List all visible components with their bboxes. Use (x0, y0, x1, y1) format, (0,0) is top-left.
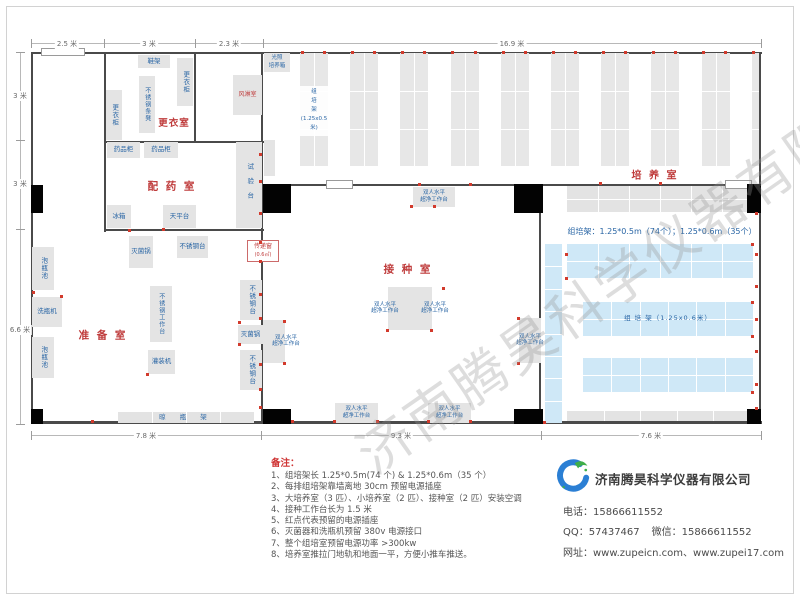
dimension-label: 7.6 米 (639, 431, 663, 441)
power-socket-dot (433, 205, 436, 208)
dimension-label: 7.8 米 (134, 431, 158, 441)
culture-rack-column-divider (414, 53, 415, 166)
culture-rack-column-divider (364, 53, 365, 166)
power-socket-dot (474, 51, 477, 54)
dimension-tick (195, 39, 196, 48)
door (326, 180, 353, 189)
power-socket-dot (552, 51, 555, 54)
culture-rack-column-divider (601, 129, 629, 130)
power-socket-dot (755, 407, 758, 410)
dimension-tick (761, 39, 762, 48)
stainless-worktable (150, 286, 172, 342)
tissue-rack-blue-3-divider (583, 375, 753, 376)
medicine-cabinet-1 (107, 142, 140, 158)
websites: www.zupeicn.com、www.zupei17.com (593, 548, 784, 559)
power-socket-dot (469, 420, 472, 423)
culture-rack-column-divider (601, 91, 629, 92)
culture-rack-column-divider (565, 53, 566, 166)
phone-number: 15866611552 (593, 507, 663, 518)
culture-rack-column-divider (451, 91, 479, 92)
note-item: 7、整个组培室预留电源功率 >300kw (271, 539, 522, 550)
power-socket-dot (32, 291, 35, 294)
power-socket-dot (602, 51, 605, 54)
wardrobe-cabinet-2 (106, 90, 122, 140)
fridge (107, 205, 131, 228)
dispensing-room-label: 配 药 室 (148, 179, 197, 194)
power-socket-dot (674, 51, 677, 54)
balance-table (163, 205, 196, 228)
tissue-rack-strip-divider (545, 311, 562, 312)
bottle-drying-rack-divider (186, 412, 187, 423)
dimension-tick (261, 431, 262, 440)
power-socket-dot (652, 51, 655, 54)
power-socket-dot (259, 388, 262, 391)
dimension-label: 16.9 米 (498, 39, 527, 49)
bottle-washer (32, 297, 62, 327)
filling-machine (148, 350, 175, 374)
clean-bench-3-label: 双人水平 超净工作台 (413, 302, 457, 316)
note-item: 2、每排组培架靠墙离地 30cm 预留电源插座 (271, 482, 522, 493)
culture-rack-column-divider (465, 53, 466, 166)
clean-bench-6-label: 双人水平 超净工作台 (335, 406, 379, 420)
stainless-table-3 (240, 350, 262, 390)
power-socket-dot (427, 420, 430, 423)
culture-rack-column-divider (551, 129, 579, 130)
dimension-label: 6.6 米 (8, 325, 32, 335)
qq-label: QQ： (563, 527, 589, 538)
tissue-rack-strip-divider (545, 401, 562, 402)
culture-rack-column-divider (501, 129, 529, 130)
clean-bench-5-label: 双人水平 超净工作台 (508, 334, 552, 348)
culture-rack-column-divider (615, 53, 616, 166)
power-socket-dot (259, 241, 262, 244)
dimension-label: 3 米 (11, 91, 29, 101)
sterilizer-pot-1 (129, 236, 153, 268)
note-item: 3、大培养室（3 匹）、小培养室（2 匹）、接种室（2 匹）安装空调 (271, 494, 522, 505)
stainless-table-2 (240, 280, 262, 320)
note-item: 4、接种工作台长为 1.5 米 (271, 505, 522, 516)
power-socket-dot (469, 183, 472, 186)
note-item: 8、培养室推拉门地轨和地面一平，方便小推车推送。 (271, 550, 522, 561)
tissue-rack-blue-2-divider (583, 319, 753, 320)
power-socket-dot (283, 320, 286, 323)
power-socket-dot (599, 182, 602, 185)
bottom-rack-gray-divider (713, 411, 714, 421)
power-socket-dot (376, 420, 379, 423)
power-socket-dot (333, 420, 336, 423)
changing-room-label: 更衣室 (158, 115, 190, 129)
pillar (514, 184, 543, 213)
power-socket-dot (451, 51, 454, 54)
culture-rack-column-divider (350, 129, 378, 130)
pillar (263, 409, 291, 424)
pillar (514, 409, 543, 424)
power-socket-dot (128, 229, 131, 232)
wall (352, 184, 517, 186)
power-socket-dot (755, 383, 758, 386)
power-socket-dot (146, 373, 149, 376)
power-socket-dot (752, 51, 755, 54)
power-socket-dot (423, 51, 426, 54)
culture-rack-column-divider (702, 91, 730, 92)
dimension-tick (761, 431, 762, 440)
dimension-tick (16, 52, 25, 53)
power-socket-dot (755, 285, 758, 288)
contact-web-row: 网址：www.zupeicn.com、www.zupei17.com (556, 544, 798, 559)
wechat-label: 微信： (652, 527, 682, 538)
culture-rack-column-divider (515, 53, 516, 166)
power-socket-dot (751, 391, 754, 394)
company-logo-text: TH (566, 472, 579, 482)
air-shower (233, 75, 262, 115)
power-socket-dot (162, 228, 165, 231)
contact-phone-row: 电话：15866611552 (556, 503, 798, 518)
culture-rack-column-divider (551, 91, 579, 92)
power-socket-dot (502, 51, 505, 54)
power-socket-dot (301, 51, 304, 54)
power-socket-dot (574, 51, 577, 54)
power-socket-dot (418, 183, 421, 186)
power-socket-dot (751, 335, 754, 338)
power-socket-dot (351, 51, 354, 54)
dimension-tick (541, 431, 542, 440)
bottom-rack-gray-divider (604, 411, 605, 421)
power-socket-dot (442, 287, 445, 290)
dimension-tick (31, 39, 32, 48)
power-socket-dot (751, 243, 754, 246)
contact-qq-row: QQ：57437467微信：15866611552 (556, 523, 798, 538)
floorplan-sheet: 晾 瓶 架组 培 架（1.25x0.6米）组 培 架 (1.25x0.5米)鞋架… (0, 0, 800, 600)
culture-rack-column (752, 53, 759, 166)
power-socket-dot (565, 277, 568, 280)
clean-bench-4-label: 双人水平 超净工作台 (264, 335, 308, 349)
pillar (747, 184, 761, 213)
medicine-cabinet-2 (144, 142, 178, 158)
pillar (31, 409, 43, 424)
notes-title: 备注： (271, 455, 522, 469)
inoculation-room-label: 接 种 室 (384, 262, 433, 277)
wechat-number: 15866611552 (682, 527, 752, 538)
power-socket-dot (259, 293, 262, 296)
bottle-soak-pool-2 (32, 337, 54, 378)
power-socket-dot (259, 212, 262, 215)
side-cabinet (264, 140, 275, 176)
sterilizer-pot-2 (238, 325, 263, 344)
dimension-label: 2.3 米 (217, 39, 241, 49)
power-socket-dot (60, 295, 63, 298)
notes-block: 备注： 1、组培架长 1.25*0.5m(74 个) & 1.25*0.6m（3… (271, 455, 522, 561)
culture-rack-column-divider (501, 91, 529, 92)
phone-label: 电话： (563, 507, 593, 518)
dimension-label: 3 米 (140, 39, 158, 49)
power-socket-dot (238, 343, 241, 346)
power-socket-dot (259, 153, 262, 156)
dimension-tick (263, 39, 264, 48)
power-socket-dot (524, 51, 527, 54)
power-socket-dot (751, 301, 754, 304)
shoe-rack (138, 55, 170, 68)
rack-spec-note: 组培架：1.25*0.5m（74个）；1.25*0.6m（35个） (566, 226, 758, 237)
culture-rack-column-divider (752, 91, 759, 92)
culture-rack-column-divider (752, 129, 759, 130)
power-socket-dot (91, 420, 94, 423)
power-socket-dot (259, 317, 262, 320)
culture-rack-label: 组 培 架 (1.25x0.5米) (298, 86, 330, 136)
power-socket-dot (410, 205, 413, 208)
dimension-tick (104, 39, 105, 48)
power-socket-dot (624, 51, 627, 54)
culture-rack-column-divider (400, 129, 428, 130)
culture-rack-column-divider (716, 53, 717, 166)
prep-room-label: 准 备 室 (79, 328, 128, 343)
dimension-tick (16, 424, 25, 425)
culture-rack-column-divider (400, 91, 428, 92)
power-socket-dot (755, 350, 758, 353)
bottle-drying-rack-divider (220, 412, 221, 423)
clean-bench-7-label: 双人水平 超净工作台 (428, 406, 472, 420)
culture-rack-column-divider (665, 53, 666, 166)
power-socket-dot (291, 420, 294, 423)
power-socket-dot (401, 51, 404, 54)
power-socket-dot (755, 318, 758, 321)
power-socket-dot (543, 421, 546, 424)
tissue-rack-strip-divider (545, 378, 562, 379)
power-socket-dot (373, 51, 376, 54)
tissue-rack-strip-divider (545, 266, 562, 267)
door (41, 48, 85, 56)
web-label: 网址： (563, 548, 593, 559)
dimension-label: 9.3 米 (389, 431, 413, 441)
power-socket-dot (755, 253, 758, 256)
wall (539, 186, 541, 422)
culture-room-label: 培 养 室 (632, 167, 679, 182)
culture-rack-column-divider (651, 91, 679, 92)
power-socket-dot (517, 317, 520, 320)
power-socket-dot (283, 362, 286, 365)
tissue-rack-strip-divider (545, 356, 562, 357)
note-item: 6、灭菌器和洗瓶机预留 380v 电源接口 (271, 527, 522, 538)
tissue-rack-blue-1-divider (567, 261, 753, 262)
dimension-label: 2.5 米 (55, 39, 79, 49)
dimension-label: 3 米 (11, 179, 29, 189)
stainless-bench (139, 76, 155, 133)
power-socket-dot (659, 182, 662, 185)
power-socket-dot (323, 51, 326, 54)
power-socket-dot (259, 363, 262, 366)
power-socket-dot (259, 260, 262, 263)
power-socket-dot (238, 321, 241, 324)
company-logo-icon: TH (556, 459, 590, 497)
wall (759, 52, 761, 424)
clean-bench-2-label: 双人水平 超净工作台 (363, 302, 407, 316)
bottom-rack-gray-divider (677, 411, 678, 421)
culture-rack-column-divider (451, 129, 479, 130)
power-socket-dot (565, 253, 568, 256)
bottle-drying-rack-divider (152, 412, 153, 423)
power-socket-dot (517, 362, 520, 365)
company-block: TH 济南腾昊科学仪器有限公司 电话：15866611552 QQ：574374… (556, 459, 798, 559)
pillar (263, 184, 291, 213)
culture-rack-column-divider (350, 91, 378, 92)
wardrobe-cabinet-1 (177, 58, 193, 106)
culture-rack-column-divider (651, 129, 679, 130)
company-name: 济南腾昊科学仪器有限公司 (595, 469, 751, 488)
tissue-rack-strip-divider (545, 289, 562, 290)
qq-number: 57437467 (589, 527, 640, 538)
dimension-tick (31, 431, 32, 440)
pillar (31, 185, 43, 213)
light-incubator (264, 53, 290, 72)
power-socket-dot (386, 329, 389, 332)
dimension-tick (16, 140, 25, 141)
bottom-rack-gray (567, 411, 750, 421)
wall-rack-gray-divider (567, 199, 753, 200)
dimension-tick (16, 229, 25, 230)
clean-bench-1-label: 双人水平 超净工作台 (412, 190, 456, 204)
bottle-soak-pool-1 (32, 247, 54, 290)
transfer-window: 传递窗(0.6㎡) (247, 240, 279, 262)
culture-rack-column-divider (702, 129, 730, 130)
note-item: 5、红点代表预留的电源插座 (271, 516, 522, 527)
bottom-rack-gray-divider (640, 411, 641, 421)
power-socket-dot (430, 329, 433, 332)
pillar (747, 409, 761, 424)
power-socket-dot (755, 212, 758, 215)
power-socket-dot (259, 180, 262, 183)
wall (194, 52, 196, 143)
note-item: 1、组培架长 1.25*0.5m(74 个) & 1.25*0.6m（35 个） (271, 471, 522, 482)
dimension-line (20, 52, 21, 424)
power-socket-dot (259, 406, 262, 409)
stainless-table-1 (177, 236, 208, 258)
power-socket-dot (702, 51, 705, 54)
power-socket-dot (724, 51, 727, 54)
